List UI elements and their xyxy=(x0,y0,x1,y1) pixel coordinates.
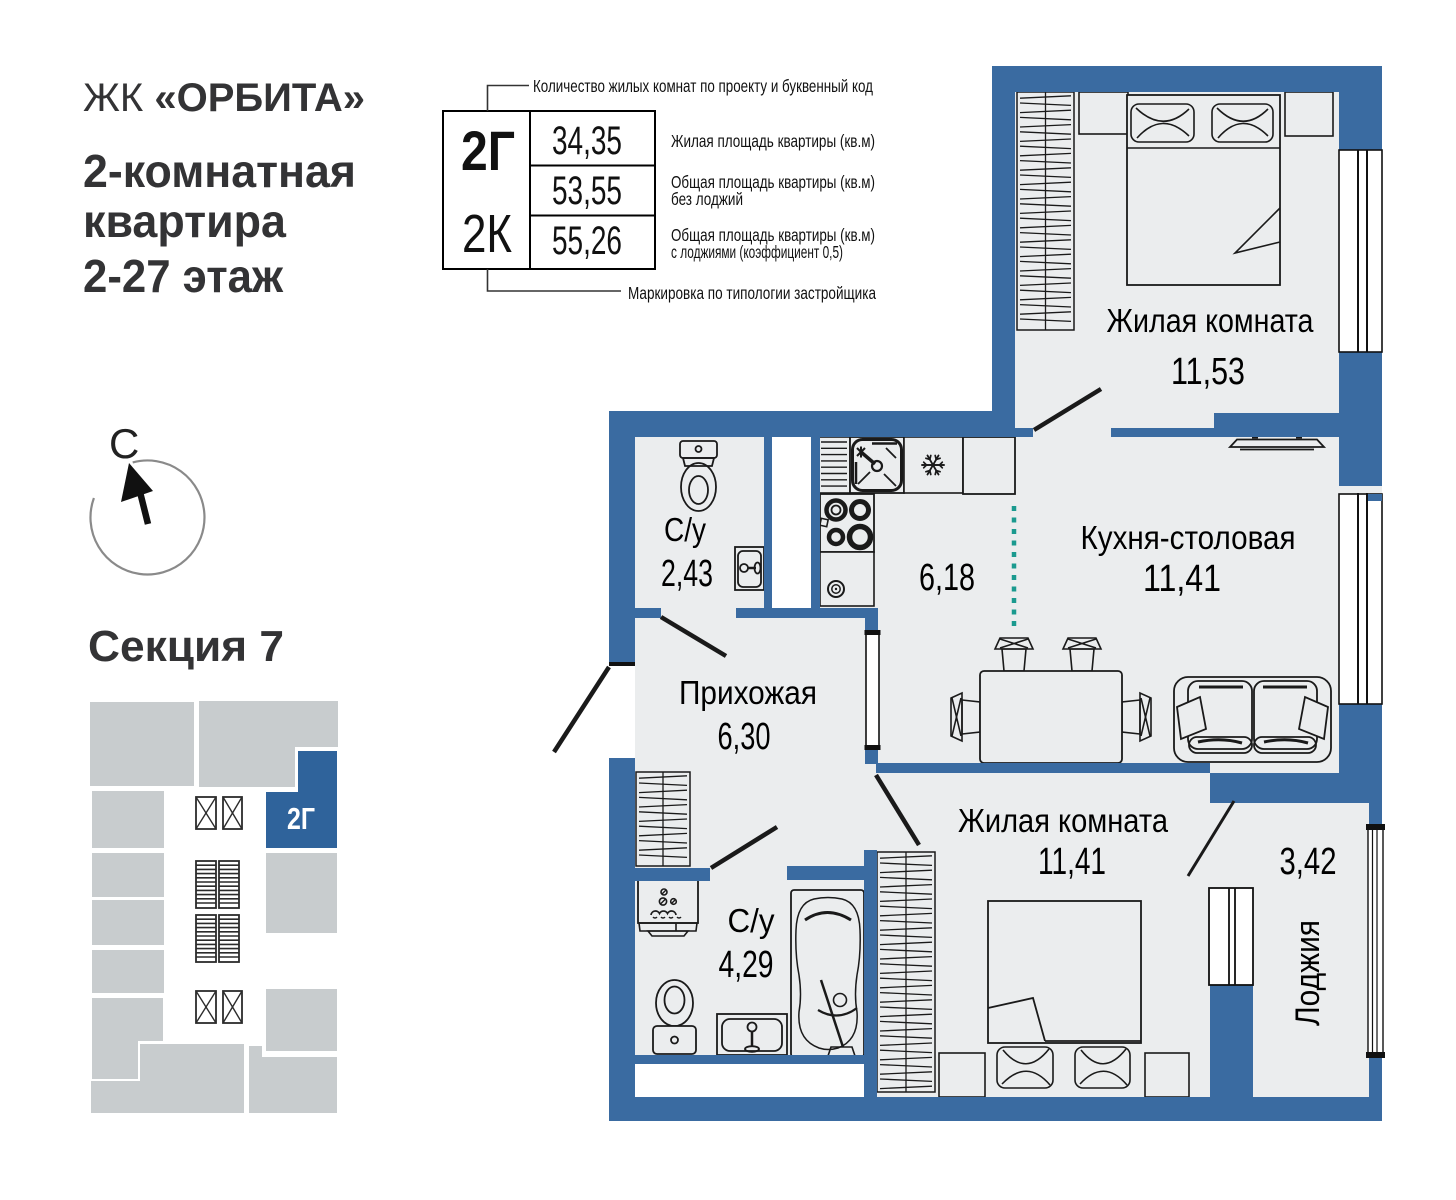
svg-text:с лоджиями (коэффициент 0,5): с лоджиями (коэффициент 0,5) xyxy=(671,242,843,262)
svg-text:11,53: 11,53 xyxy=(1171,351,1245,393)
svg-text:квартира: квартира xyxy=(83,195,286,247)
svg-text:Жилая комната: Жилая комната xyxy=(1107,302,1315,339)
svg-text:53,55: 53,55 xyxy=(552,169,622,213)
svg-text:Количество жилых комнат по про: Количество жилых комнат по проекту и бук… xyxy=(533,76,873,96)
svg-text:34,35: 34,35 xyxy=(552,119,622,163)
svg-text:11,41: 11,41 xyxy=(1143,558,1221,600)
svg-text:Маркировка по типологии зас: Маркировка по типологии застройщика xyxy=(628,283,876,303)
svg-text:2Г: 2Г xyxy=(461,119,515,182)
svg-text:11,41: 11,41 xyxy=(1038,841,1106,883)
svg-text:Лоджия: Лоджия xyxy=(1289,920,1327,1026)
svg-text:ЖК «ОРБИТА»: ЖК «ОРБИТА» xyxy=(83,76,365,120)
svg-text:С: С xyxy=(109,420,139,467)
svg-text:2К: 2К xyxy=(462,204,512,264)
svg-text:55,26: 55,26 xyxy=(552,219,622,263)
svg-text:2-комнатная: 2-комнатная xyxy=(83,145,356,197)
svg-text:Жилая площадь квартиры (кв.м): Жилая площадь квартиры (кв.м) xyxy=(671,131,875,151)
svg-text:6,18: 6,18 xyxy=(919,557,975,599)
svg-text:Кухня-столовая: Кухня-столовая xyxy=(1081,519,1296,556)
svg-text:3,42: 3,42 xyxy=(1280,841,1337,883)
svg-text:Секция 7: Секция 7 xyxy=(88,622,284,671)
svg-text:С/у: С/у xyxy=(728,902,775,939)
svg-text:6,30: 6,30 xyxy=(718,716,771,758)
svg-text:С/у: С/у xyxy=(664,511,706,548)
svg-text:Прихожая: Прихожая xyxy=(679,674,817,711)
svg-text:2-27 этаж: 2-27 этаж xyxy=(83,250,283,302)
svg-text:2,43: 2,43 xyxy=(661,553,713,595)
svg-text:2Г: 2Г xyxy=(287,801,315,836)
svg-text:без лоджий: без лоджий xyxy=(671,189,743,209)
svg-text:Жилая комната: Жилая комната xyxy=(958,802,1169,839)
svg-text:4,29: 4,29 xyxy=(719,944,774,986)
